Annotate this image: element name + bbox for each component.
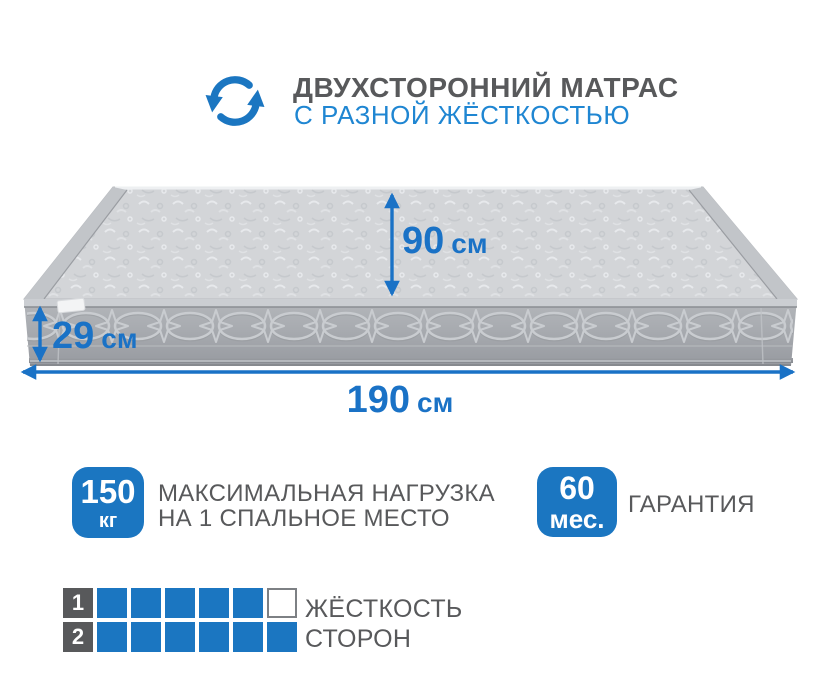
depth-dimension-label: 90см <box>402 222 488 260</box>
mattress-front-face <box>24 298 797 366</box>
firmness-cell-filled <box>233 588 263 618</box>
mattress-infographic: ДВУХСТОРОННИЙ МАТРАС С РАЗНОЙ ЖЁСТКОСТЬЮ <box>0 0 816 700</box>
firmness-scale: 12 <box>63 588 297 652</box>
warranty-label: ГАРАНТИЯ <box>628 492 755 517</box>
firmness-cell-filled <box>199 588 229 618</box>
firmness-cell-filled <box>97 622 127 652</box>
rotate-arrows-icon <box>204 70 266 132</box>
height-dimension-label: 29см <box>52 317 138 355</box>
firmness-cell-filled <box>199 622 229 652</box>
firmness-cell-filled <box>97 588 127 618</box>
page-title: ДВУХСТОРОННИЙ МАТРАС <box>293 74 679 102</box>
firmness-cell-filled <box>233 622 263 652</box>
side-number-cell: 2 <box>63 622 93 652</box>
page-subtitle: С РАЗНОЙ ЖЁСТКОСТЬЮ <box>294 102 630 128</box>
firmness-cell-empty <box>267 588 297 618</box>
firmness-row-1: 1 <box>63 588 297 618</box>
side-number-cell: 1 <box>63 588 93 618</box>
warranty-badge: 60 мес. <box>537 467 617 537</box>
firmness-cell-filled <box>267 622 297 652</box>
firmness-cell-filled <box>131 622 161 652</box>
firmness-cell-filled <box>131 588 161 618</box>
firmness-cell-filled <box>165 622 195 652</box>
firmness-cell-filled <box>165 588 195 618</box>
firmness-row-2: 2 <box>63 622 297 652</box>
max-load-label: МАКСИМАЛЬНАЯ НАГРУЗКА НА 1 СПАЛЬНОЕ МЕСТ… <box>158 481 495 531</box>
max-load-badge: 150 кг <box>72 467 144 538</box>
firmness-caption: ЖЁСТКОСТЬ СТОРОН <box>305 594 463 654</box>
length-dimension-label: 190см <box>0 381 800 419</box>
mattress-care-label <box>57 298 85 313</box>
